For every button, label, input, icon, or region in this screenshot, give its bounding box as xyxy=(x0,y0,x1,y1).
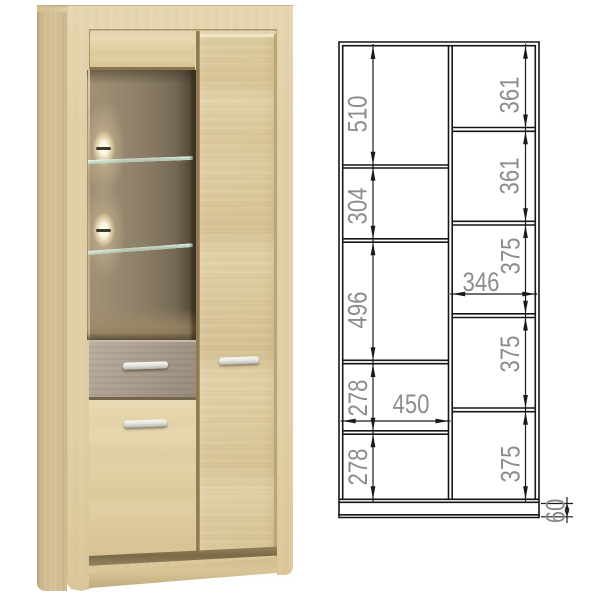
svg-text:375: 375 xyxy=(497,238,527,275)
svg-text:361: 361 xyxy=(496,158,526,195)
svg-text:278: 278 xyxy=(344,449,374,486)
svg-text:304: 304 xyxy=(344,188,374,225)
svg-text:510: 510 xyxy=(344,96,374,133)
svg-text:496: 496 xyxy=(344,292,374,329)
svg-text:450: 450 xyxy=(393,390,430,420)
svg-text:346: 346 xyxy=(463,268,500,298)
svg-text:278: 278 xyxy=(344,380,374,417)
svg-text:361: 361 xyxy=(496,77,526,114)
svg-text:375: 375 xyxy=(496,336,526,373)
svg-text:375: 375 xyxy=(497,446,527,483)
svg-text:60: 60 xyxy=(542,499,572,524)
